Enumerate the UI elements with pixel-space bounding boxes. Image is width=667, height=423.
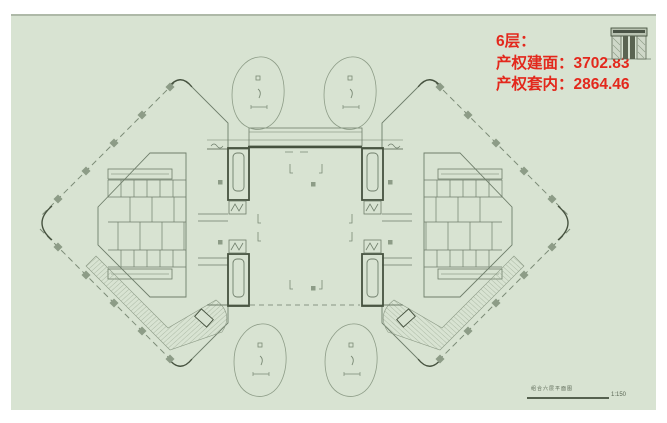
- gross-area-label: 产权建面：: [496, 55, 574, 72]
- elevator-core: [362, 254, 383, 306]
- net-area-label: 产权套内：: [496, 76, 574, 93]
- drawing-title: 组合六层平面图: [531, 385, 573, 392]
- floorplan-sheet: 6层： 产权建面：3702.83 产权套内：2864.46 组合六层平面图 1:…: [0, 0, 667, 423]
- elevator-core: [228, 254, 249, 306]
- drawing-scale: 1:150: [611, 392, 626, 398]
- door-section-detail-icon: [607, 26, 651, 62]
- landscape-cloud: [324, 57, 376, 130]
- grid-reference-marks: [258, 152, 352, 289]
- title-underline: [527, 397, 609, 399]
- title-block: 组合六层平面图 1:150: [527, 385, 637, 405]
- elevator-core: [228, 148, 249, 200]
- net-area-value: 2864.46: [574, 76, 630, 93]
- right-wing: [382, 80, 570, 367]
- landscape-cloud: [234, 324, 286, 397]
- landscape-cloud: [325, 324, 377, 397]
- entrance-canopy: [249, 128, 362, 146]
- central-block: [207, 128, 403, 306]
- elevator-core: [362, 148, 383, 200]
- left-wing: [40, 80, 228, 367]
- landscape-cloud: [232, 57, 284, 130]
- stair-appendages: [229, 201, 381, 253]
- net-area-line: 产权套内：2864.46: [496, 74, 630, 96]
